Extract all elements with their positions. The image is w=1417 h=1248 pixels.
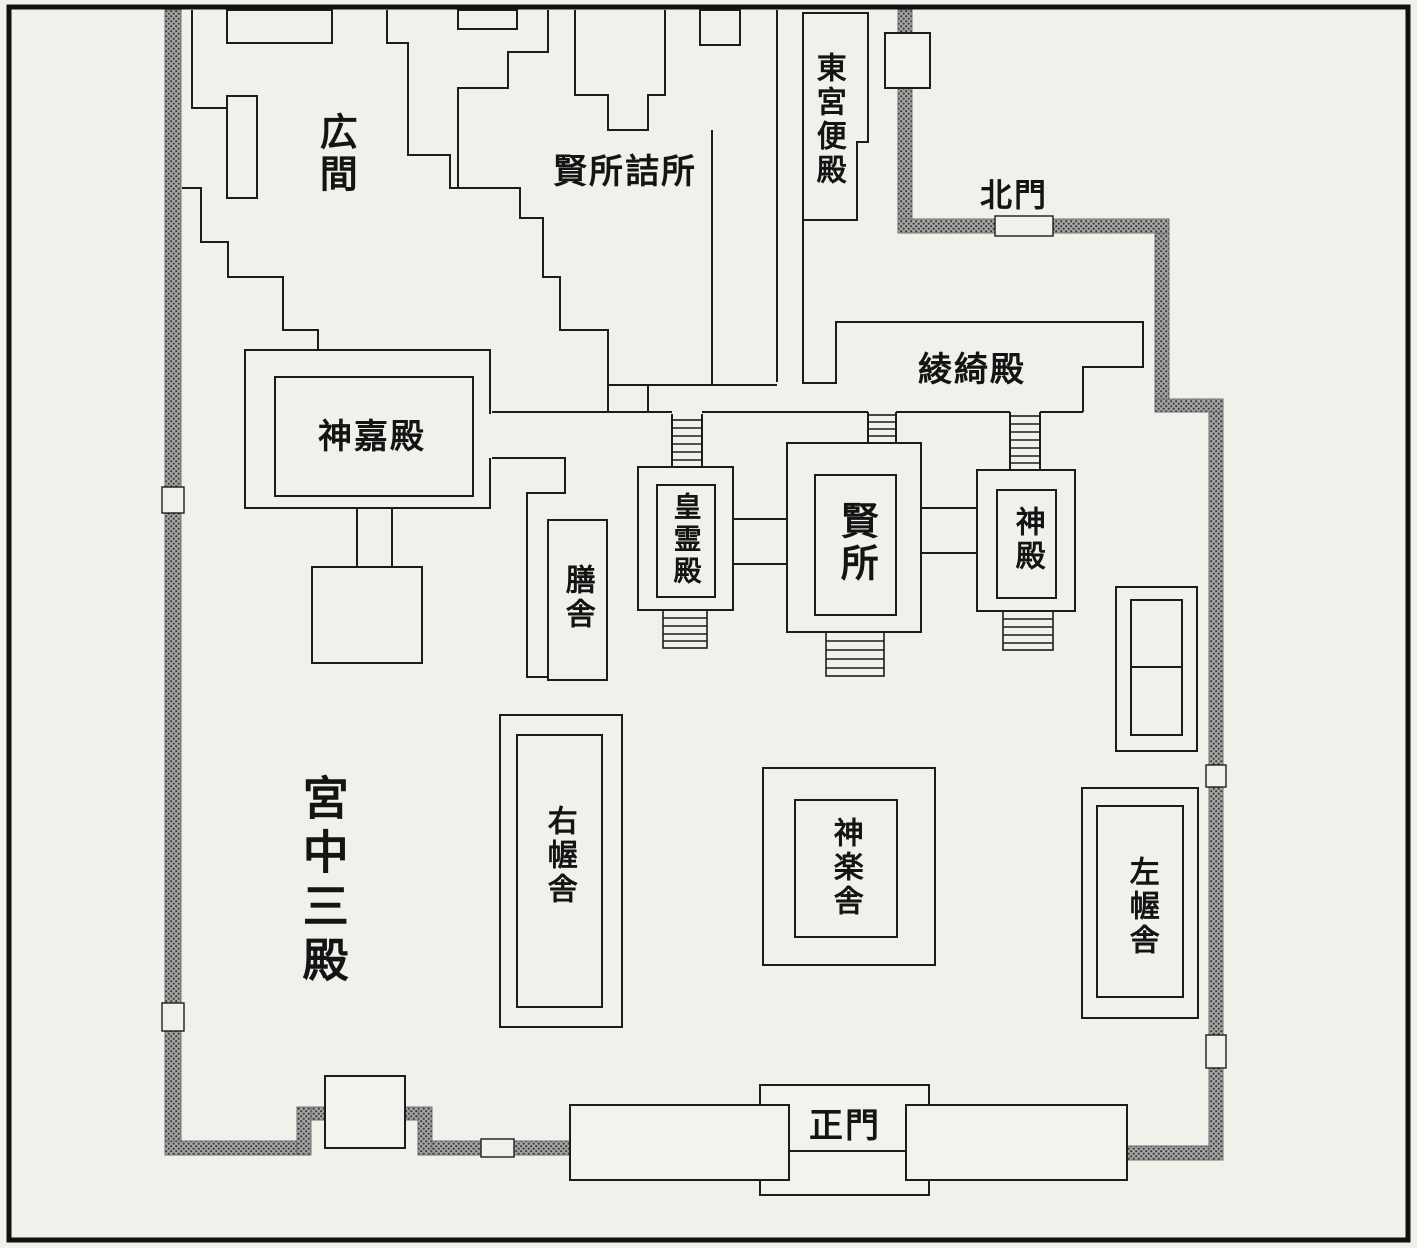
label-sa-akusha: 左幄舎 [1124,856,1158,958]
label-kashikodokoro: 賢所 [834,501,877,585]
label-ryokiden: 綾綺殿 [918,351,1026,389]
label-kagurasha: 神楽舎 [828,817,862,919]
shinkaden-building [245,350,490,663]
label-hokumon: 北門 [980,178,1048,214]
hiroma-buildings [182,10,740,385]
label-seimon: 正門 [809,1107,881,1145]
label-koreiden: 皇霊殿 [670,492,701,588]
wall-gate-openings [162,216,1226,1157]
label-zensha: 膳舎 [560,564,594,632]
label-kashikodokoro-tsumesho: 賢所詰所 [553,153,697,191]
kashikodokoro-building [733,412,921,632]
shinden-building [921,412,1075,611]
label-shinkaden: 神嘉殿 [318,418,426,456]
page-border [9,7,1408,1240]
floor-plan-drawing [0,0,1417,1248]
label-kyuchu-sanden: 宮中三殿 [296,774,348,990]
tsumesho-building [608,10,777,412]
label-togu-benden: 東宮便殿 [811,52,845,188]
label-hiroma: 広間 [313,112,356,196]
label-shinden: 神殿 [1010,506,1044,574]
east-annex-building [1116,587,1197,751]
wall-gate-buildings [325,33,930,1148]
floor-plan-page: 広間 賢所詰所 東宮便殿 北門 綾綺殿 神嘉殿 膳舎 皇霊殿 賢所 神殿 右幄舎… [0,0,1417,1248]
label-u-akusha: 右幄舎 [542,805,576,907]
